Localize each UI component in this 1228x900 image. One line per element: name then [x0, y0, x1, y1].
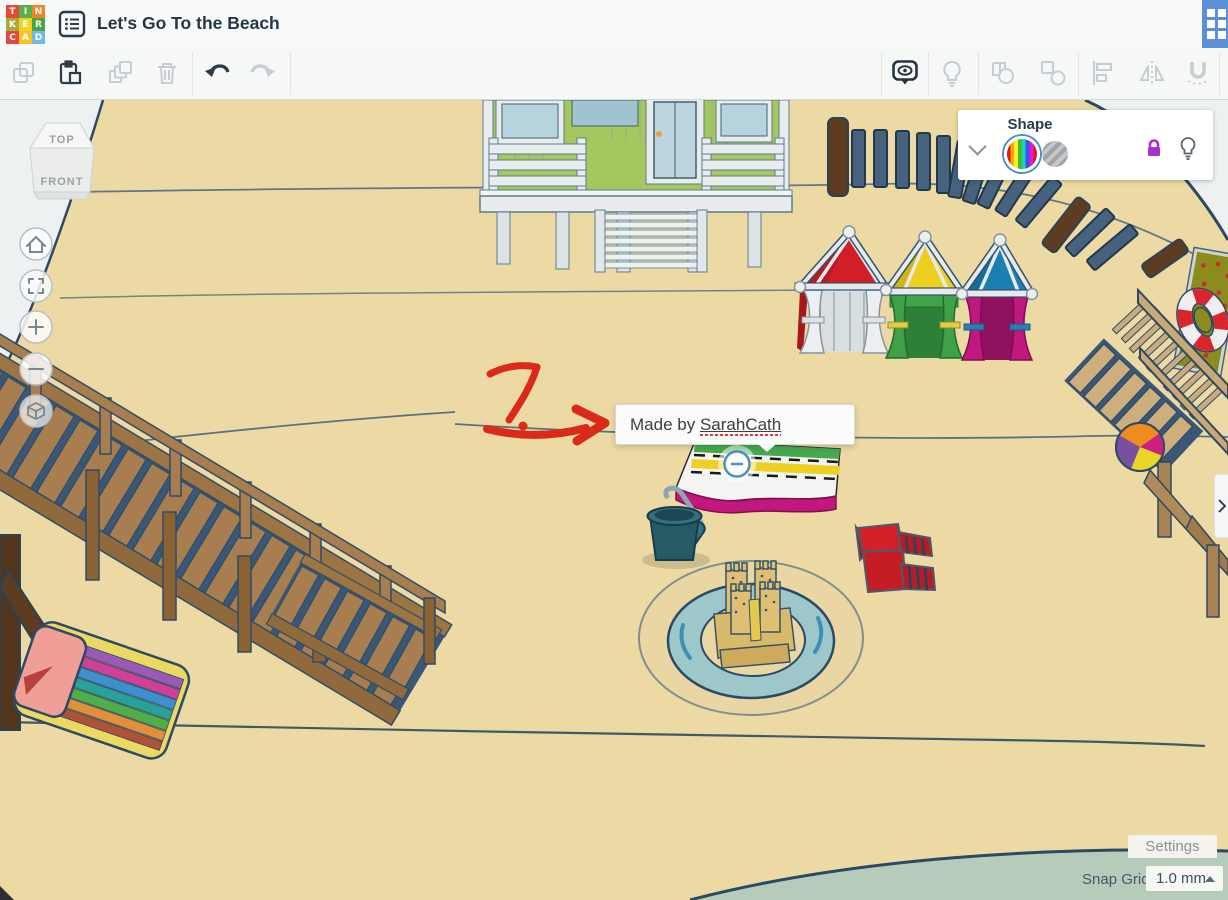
magnet-icon: [1184, 59, 1212, 87]
visibility-bulb-icon[interactable]: [1177, 136, 1199, 165]
ungroup-button[interactable]: [1033, 54, 1073, 92]
toolbar-separator: [290, 52, 291, 95]
mirror-button[interactable]: [1132, 54, 1172, 92]
fit-view-button[interactable]: [20, 270, 52, 302]
magnet-button[interactable]: [1178, 54, 1218, 92]
logo-cell: K: [6, 18, 19, 31]
logo-cell: A: [19, 31, 32, 44]
undo-button[interactable]: [197, 54, 237, 92]
chevron-down-icon[interactable]: [968, 137, 986, 155]
view-cube-front-label[interactable]: FRONT: [41, 176, 84, 188]
top-bar: T I N K E R C A D Let's Go To the Beach: [0, 0, 1228, 49]
tinkercad-app: { "header": { "title": "Let's Go To the …: [0, 0, 1228, 900]
group-button[interactable]: [983, 54, 1023, 92]
transparent-swatch[interactable]: [1042, 141, 1068, 167]
paste-button[interactable]: [50, 54, 90, 92]
delete-button[interactable]: [147, 54, 187, 92]
dropdown-arrow-icon: [1205, 876, 1215, 882]
show-all-button[interactable]: [885, 54, 925, 92]
grid-icon: [1207, 9, 1228, 39]
author-link[interactable]: SarahCath: [700, 415, 781, 436]
door-knob: [656, 131, 662, 137]
toolbar-separator: [881, 52, 882, 95]
ungroup-icon: [1039, 59, 1067, 87]
expand-panel-tab[interactable]: [1214, 474, 1228, 538]
apps-menu-button[interactable]: [1202, 0, 1228, 48]
logo-cell: N: [32, 5, 45, 18]
toolbar-separator: [928, 52, 929, 95]
toolbar-separator: [978, 52, 979, 95]
logo-cell: D: [32, 31, 45, 44]
shape-panel-title: Shape: [1000, 116, 1060, 133]
beach-ball[interactable]: [1116, 422, 1165, 471]
tooltip-text: Made by: [630, 415, 700, 434]
lock-icon[interactable]: [1144, 138, 1164, 163]
logo-cell: E: [19, 18, 32, 31]
mirror-icon: [1138, 59, 1166, 87]
redo-icon: [249, 60, 277, 86]
light-button[interactable]: [932, 54, 972, 92]
sandcastle[interactable]: [639, 561, 863, 715]
logo-cell: C: [6, 31, 19, 44]
edit-toolbar: [0, 48, 1228, 100]
view-cube[interactable]: TOP FRONT: [30, 123, 94, 199]
paste-icon: [57, 60, 83, 86]
redo-button[interactable]: [243, 54, 283, 92]
lock-indicator-badge[interactable]: [718, 445, 756, 483]
trash-icon: [154, 60, 180, 86]
zoom-out-button[interactable]: [20, 353, 52, 385]
show-all-eye-icon: [891, 59, 919, 87]
settings-button[interactable]: Settings: [1128, 835, 1217, 858]
tinkercad-logo[interactable]: T I N K E R C A D: [6, 5, 45, 44]
snap-grid-dropdown[interactable]: 1.0 mm: [1146, 866, 1223, 891]
align-button[interactable]: [1083, 54, 1123, 92]
copy-button[interactable]: [4, 54, 44, 92]
made-by-tooltip: Made by SarahCath: [615, 404, 855, 445]
copy-icon: [11, 60, 37, 86]
snap-grid-value: 1.0 mm: [1156, 870, 1206, 887]
multicolor-swatch[interactable]: [1004, 136, 1040, 172]
align-icon: [1089, 59, 1117, 87]
design-menu-button[interactable]: [58, 10, 86, 38]
bulb-icon: [939, 59, 965, 87]
toolbar-separator: [1078, 52, 1079, 95]
design-title[interactable]: Let's Go To the Beach: [97, 13, 280, 34]
snap-grid-label: Snap Grid: [1082, 871, 1150, 888]
duplicate-button[interactable]: [101, 54, 141, 92]
perspective-toggle-button[interactable]: [20, 395, 52, 427]
undo-icon: [203, 60, 231, 86]
logo-cell: R: [32, 18, 45, 31]
view-cube-top-label[interactable]: TOP: [49, 134, 74, 146]
logo-cell: T: [6, 5, 19, 18]
list-menu-icon: [58, 10, 86, 38]
duplicate-icon: [108, 60, 134, 86]
home-view-button[interactable]: [20, 228, 52, 260]
toolbar-separator: [192, 52, 193, 95]
shape-inspector-panel: Shape: [958, 110, 1213, 180]
toolbar-separator: [1219, 52, 1220, 95]
logo-cell: I: [19, 5, 32, 18]
group-icon: [989, 59, 1017, 87]
zoom-in-button[interactable]: [20, 311, 52, 343]
chevron-right-icon: [1217, 498, 1227, 514]
